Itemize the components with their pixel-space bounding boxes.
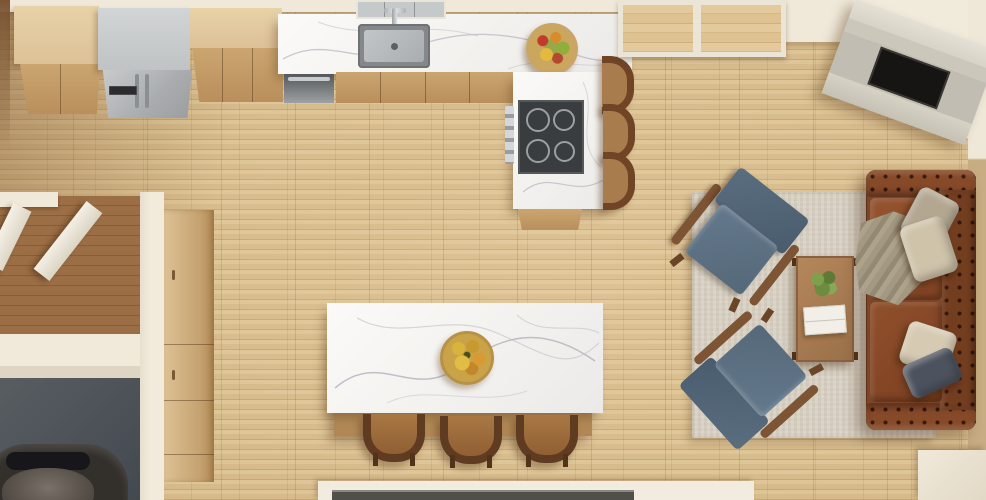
- cabinet-handle-icon: [172, 270, 175, 280]
- potted-plant-icon: [808, 268, 840, 300]
- dishwasher: [284, 74, 334, 103]
- cabinet-seam: [164, 454, 214, 455]
- stool-leg: [373, 453, 378, 466]
- stool-leg: [450, 455, 455, 468]
- ledge-divider: [414, 2, 415, 17]
- cabinet-seam: [252, 48, 253, 102]
- cabinet-seam: [425, 72, 426, 103]
- upper-cabinet-mid-front: [192, 48, 283, 102]
- cabinet-seam: [164, 344, 214, 345]
- lower-cabinets: [336, 72, 513, 103]
- upper-cabinet-left-top: [14, 6, 99, 64]
- console-divider: [693, 5, 701, 52]
- car: [0, 444, 128, 500]
- island-stool: [516, 415, 578, 463]
- control-panel-icon: [109, 86, 137, 95]
- stool-leg: [487, 455, 492, 468]
- marble-veins: [278, 14, 632, 74]
- cabinet-seam: [222, 48, 223, 102]
- drain-icon: [391, 43, 398, 50]
- garage: [0, 378, 140, 500]
- refrigerator-front: [101, 70, 192, 118]
- burner-icon: [526, 139, 550, 163]
- bottom-window-wall: [318, 481, 754, 500]
- cabinet-seam: [380, 72, 381, 103]
- oven-handle-icon: [505, 106, 514, 164]
- stool-leg: [410, 453, 415, 466]
- floorplan-render: [0, 0, 986, 500]
- vertical-wall: [140, 192, 164, 500]
- stool-leg: [563, 454, 568, 467]
- refrigerator-top: [98, 8, 190, 70]
- sink: [358, 24, 430, 68]
- pantry-cabinet: [164, 210, 214, 482]
- upper-cabinet-mid-top: [190, 8, 282, 48]
- bottom-right-corner-wall: [918, 450, 986, 500]
- car-roof: [2, 468, 94, 500]
- entry-wall-stub: [0, 192, 58, 207]
- dishwasher-handle-icon: [288, 77, 330, 81]
- island-stool: [440, 416, 502, 464]
- cabinet-seam: [164, 400, 214, 401]
- fridge-handle-icon: [145, 74, 149, 108]
- burner-icon: [554, 141, 575, 162]
- left-wall-edge: [0, 0, 10, 150]
- coffee-table: [796, 256, 854, 362]
- kitchen-counter: [278, 14, 632, 74]
- book-tray: [803, 305, 847, 336]
- cooktop: [518, 100, 584, 174]
- cabinet-seam: [60, 64, 61, 114]
- cabinet-handle-icon: [172, 370, 175, 380]
- fruit-bowl-counter: [526, 23, 578, 75]
- cabinet-seam: [469, 72, 470, 103]
- stool-leg: [526, 454, 531, 467]
- book-spine: [805, 319, 845, 323]
- upper-cabinet-left-front: [20, 64, 100, 114]
- wall-console: [618, 0, 786, 57]
- burner-icon: [526, 108, 550, 132]
- counter-leg-base: [518, 209, 582, 230]
- island-stool: [363, 414, 425, 462]
- bottom-window-glass: [332, 490, 634, 500]
- burner-icon: [553, 109, 575, 131]
- entry-bottom-wall: [0, 334, 150, 380]
- fruit-bowl-island: [440, 331, 494, 385]
